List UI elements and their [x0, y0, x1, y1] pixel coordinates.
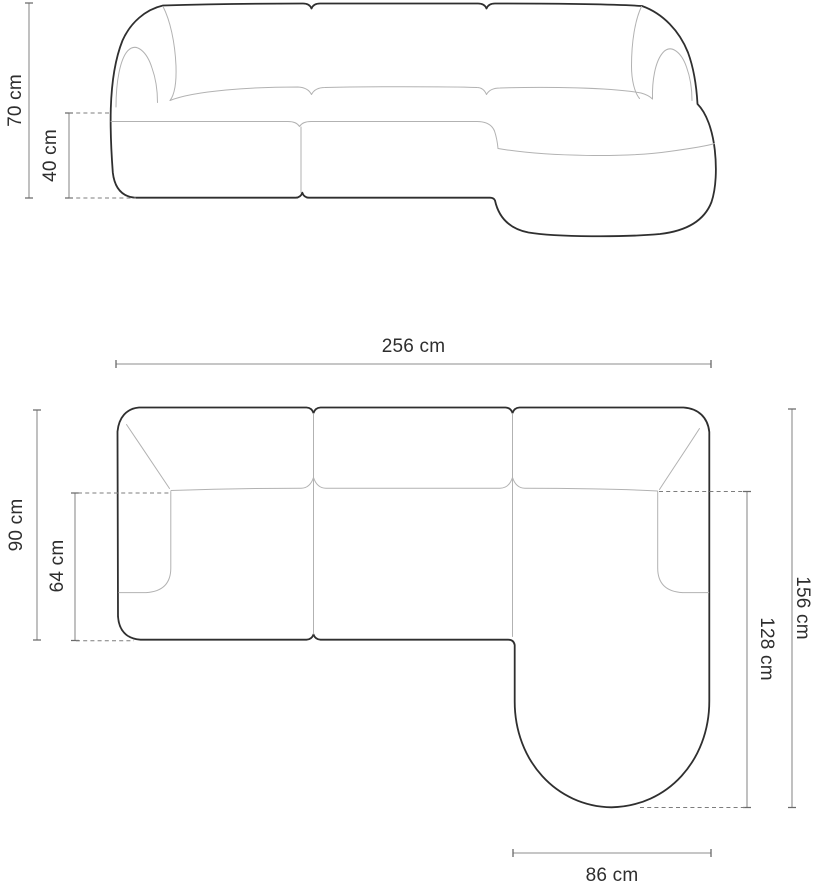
dimension-seat-depth: 64 cm — [47, 493, 170, 641]
front-view-outline — [111, 4, 716, 237]
dimension-chaise-depth-label: 128 cm — [756, 617, 777, 681]
diagram-canvas: 70 cm 40 cm — [0, 0, 819, 884]
dimension-seat-height: 40 cm — [40, 113, 136, 198]
dimension-chaise-width-label: 86 cm — [586, 865, 639, 884]
dimension-total-depth: 156 cm — [788, 409, 813, 808]
front-seat-cushion-line — [170, 87, 653, 101]
dimension-body-depth-label: 90 cm — [6, 499, 27, 552]
dimension-total-width: 256 cm — [116, 336, 711, 368]
top-right-arm-diagonal-line — [660, 429, 700, 490]
dimension-total-height-label: 70 cm — [5, 74, 26, 127]
front-view: 70 cm 40 cm — [5, 3, 716, 236]
front-left-arm-arch-line — [116, 47, 158, 107]
dimension-chaise-width: 86 cm — [513, 849, 711, 884]
front-chaise-cushion-line — [498, 144, 715, 156]
front-seat-front-edge-line — [111, 122, 498, 149]
dimension-total-depth-label: 156 cm — [792, 576, 813, 640]
top-view: 256 cm 90 cm 64 cm 156 cm — [6, 336, 813, 884]
top-backrest-line — [171, 478, 658, 492]
top-left-arm-inner-line — [119, 492, 171, 593]
top-left-arm-diagonal-line — [127, 425, 170, 489]
dimension-body-depth: 90 cm — [6, 410, 41, 640]
dimension-seat-height-label: 40 cm — [40, 129, 61, 182]
front-left-arm-inner-line — [163, 7, 176, 101]
dimension-total-height: 70 cm — [5, 3, 33, 198]
dimension-total-width-label: 256 cm — [382, 336, 446, 357]
dimension-seat-depth-label: 64 cm — [47, 540, 68, 593]
front-right-arm-arch-line — [652, 49, 692, 101]
top-right-arm-inner-line — [658, 492, 709, 593]
top-view-outline — [118, 408, 710, 808]
front-right-arm-inner-line — [632, 7, 642, 99]
sofa-dimension-diagram: 70 cm 40 cm — [0, 0, 819, 884]
